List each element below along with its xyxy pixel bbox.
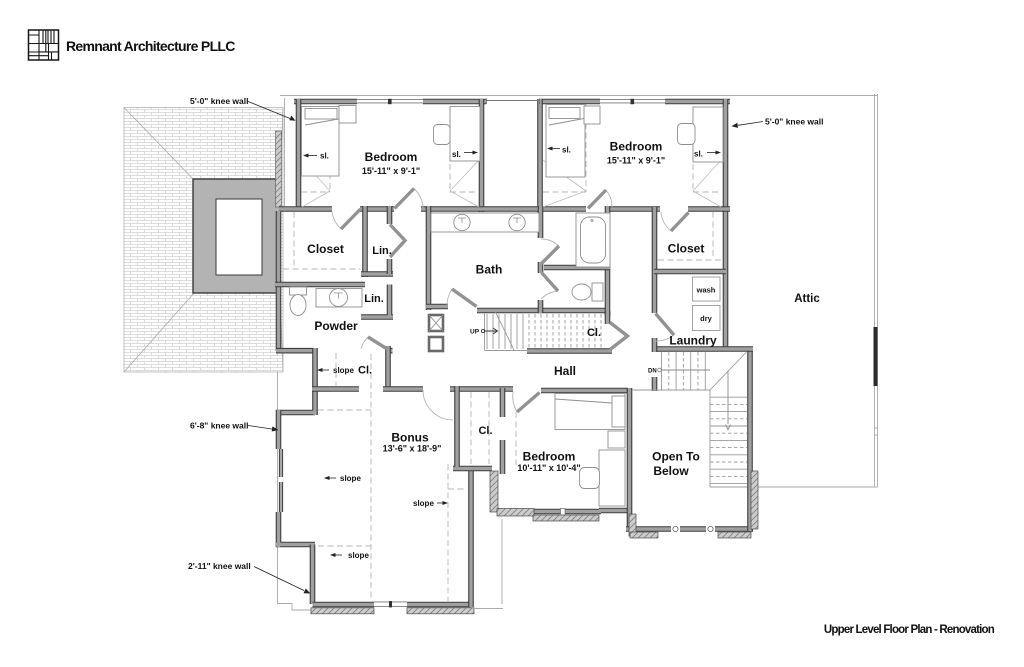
svg-text:10'-11" x 10'-4": 10'-11" x 10'-4" bbox=[517, 463, 580, 473]
svg-text:5'-0" knee wall: 5'-0" knee wall bbox=[765, 117, 824, 127]
svg-text:slope: slope bbox=[413, 499, 434, 508]
svg-text:15'-11" x 9'-1": 15'-11" x 9'-1" bbox=[362, 166, 420, 176]
svg-text:dry: dry bbox=[700, 314, 713, 323]
svg-text:slope: slope bbox=[348, 551, 369, 560]
svg-text:sl.: sl. bbox=[694, 150, 703, 159]
svg-text:Hall: Hall bbox=[554, 364, 576, 378]
svg-text:Powder: Powder bbox=[314, 319, 358, 333]
svg-text:Cl.: Cl. bbox=[478, 425, 492, 437]
svg-text:5'-0" knee wall: 5'-0" knee wall bbox=[190, 96, 249, 106]
svg-text:Bedroom: Bedroom bbox=[523, 450, 576, 464]
svg-text:Bonus: Bonus bbox=[391, 431, 429, 445]
svg-text:slope: slope bbox=[340, 474, 361, 483]
svg-text:Lin.: Lin. bbox=[372, 245, 392, 257]
svg-text:DN: DN bbox=[648, 369, 657, 375]
svg-text:Lin.: Lin. bbox=[364, 293, 384, 305]
svg-text:wash: wash bbox=[696, 286, 716, 295]
svg-text:Bedroom: Bedroom bbox=[365, 150, 418, 164]
svg-text:Closet: Closet bbox=[307, 242, 344, 256]
svg-text:Laundry: Laundry bbox=[669, 334, 717, 348]
svg-text:Bedroom: Bedroom bbox=[610, 140, 663, 154]
svg-text:Closet: Closet bbox=[668, 242, 705, 256]
svg-text:13'-6" x 18'-9": 13'-6" x 18'-9" bbox=[383, 444, 442, 454]
svg-text:Upper Level Floor Plan - Renov: Upper Level Floor Plan - Renovation bbox=[824, 624, 995, 636]
svg-text:2'-11" knee wall: 2'-11" knee wall bbox=[188, 561, 251, 571]
svg-text:Below: Below bbox=[653, 464, 689, 478]
svg-text:sl.: sl. bbox=[562, 146, 571, 155]
svg-text:Cl.: Cl. bbox=[587, 327, 601, 339]
svg-text:Attic: Attic bbox=[794, 293, 820, 305]
svg-text:Bath: Bath bbox=[476, 263, 503, 277]
svg-text:15'-11" x 9'-1": 15'-11" x 9'-1" bbox=[607, 156, 665, 166]
svg-text:6'-8" knee wall: 6'-8" knee wall bbox=[190, 421, 249, 431]
svg-text:slope: slope bbox=[333, 366, 354, 375]
svg-text:Open To: Open To bbox=[652, 450, 700, 464]
svg-text:sl.: sl. bbox=[452, 150, 461, 159]
svg-text:Remnant Architecture PLLC: Remnant Architecture PLLC bbox=[66, 38, 235, 54]
svg-text:sl.: sl. bbox=[320, 152, 329, 161]
svg-text:UP: UP bbox=[470, 329, 480, 336]
svg-text:Cl.: Cl. bbox=[358, 365, 372, 377]
